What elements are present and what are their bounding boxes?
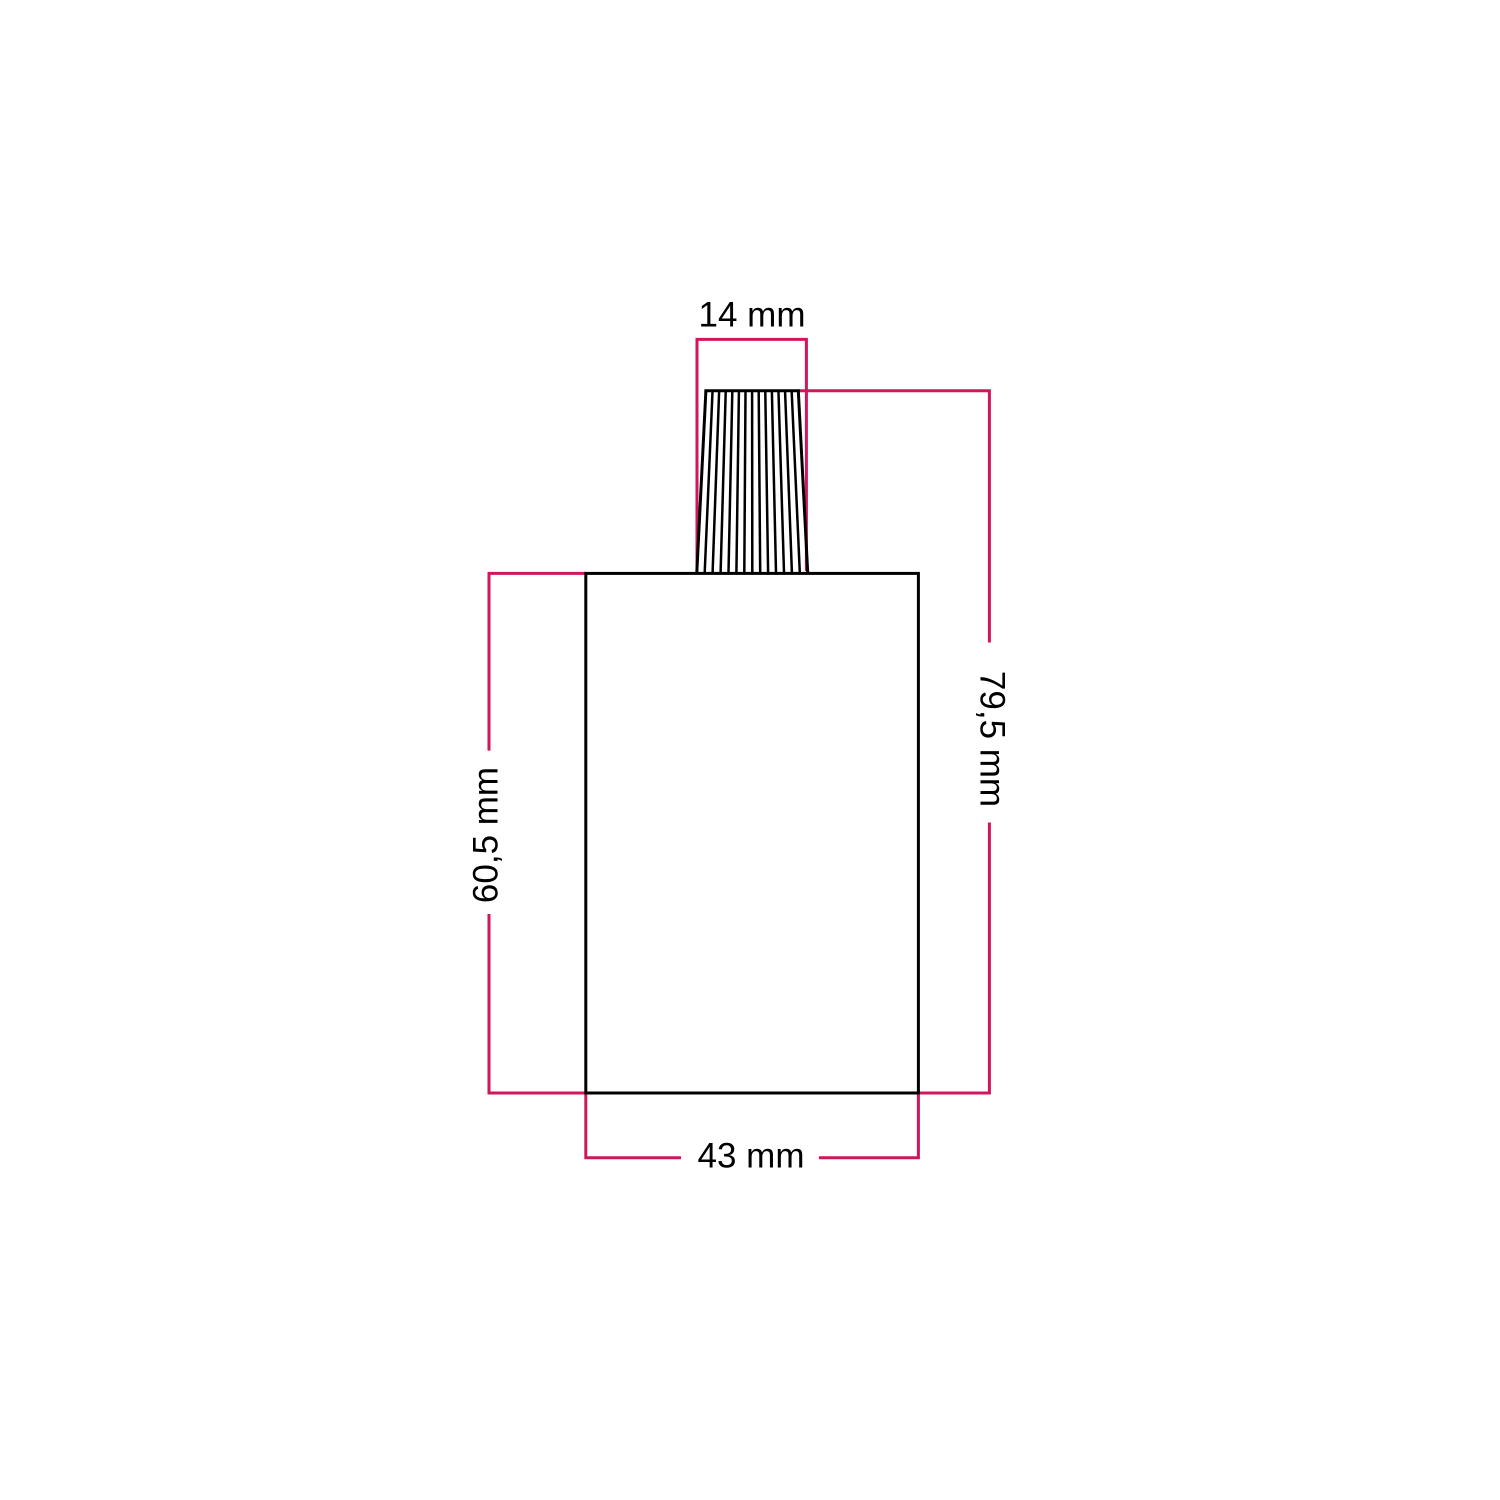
svg-text:60,5 mm: 60,5 mm — [466, 767, 505, 903]
svg-text:79,5 mm: 79,5 mm — [972, 671, 1011, 807]
svg-text:43 mm: 43 mm — [698, 1137, 805, 1176]
svg-text:14 mm: 14 mm — [699, 295, 806, 334]
